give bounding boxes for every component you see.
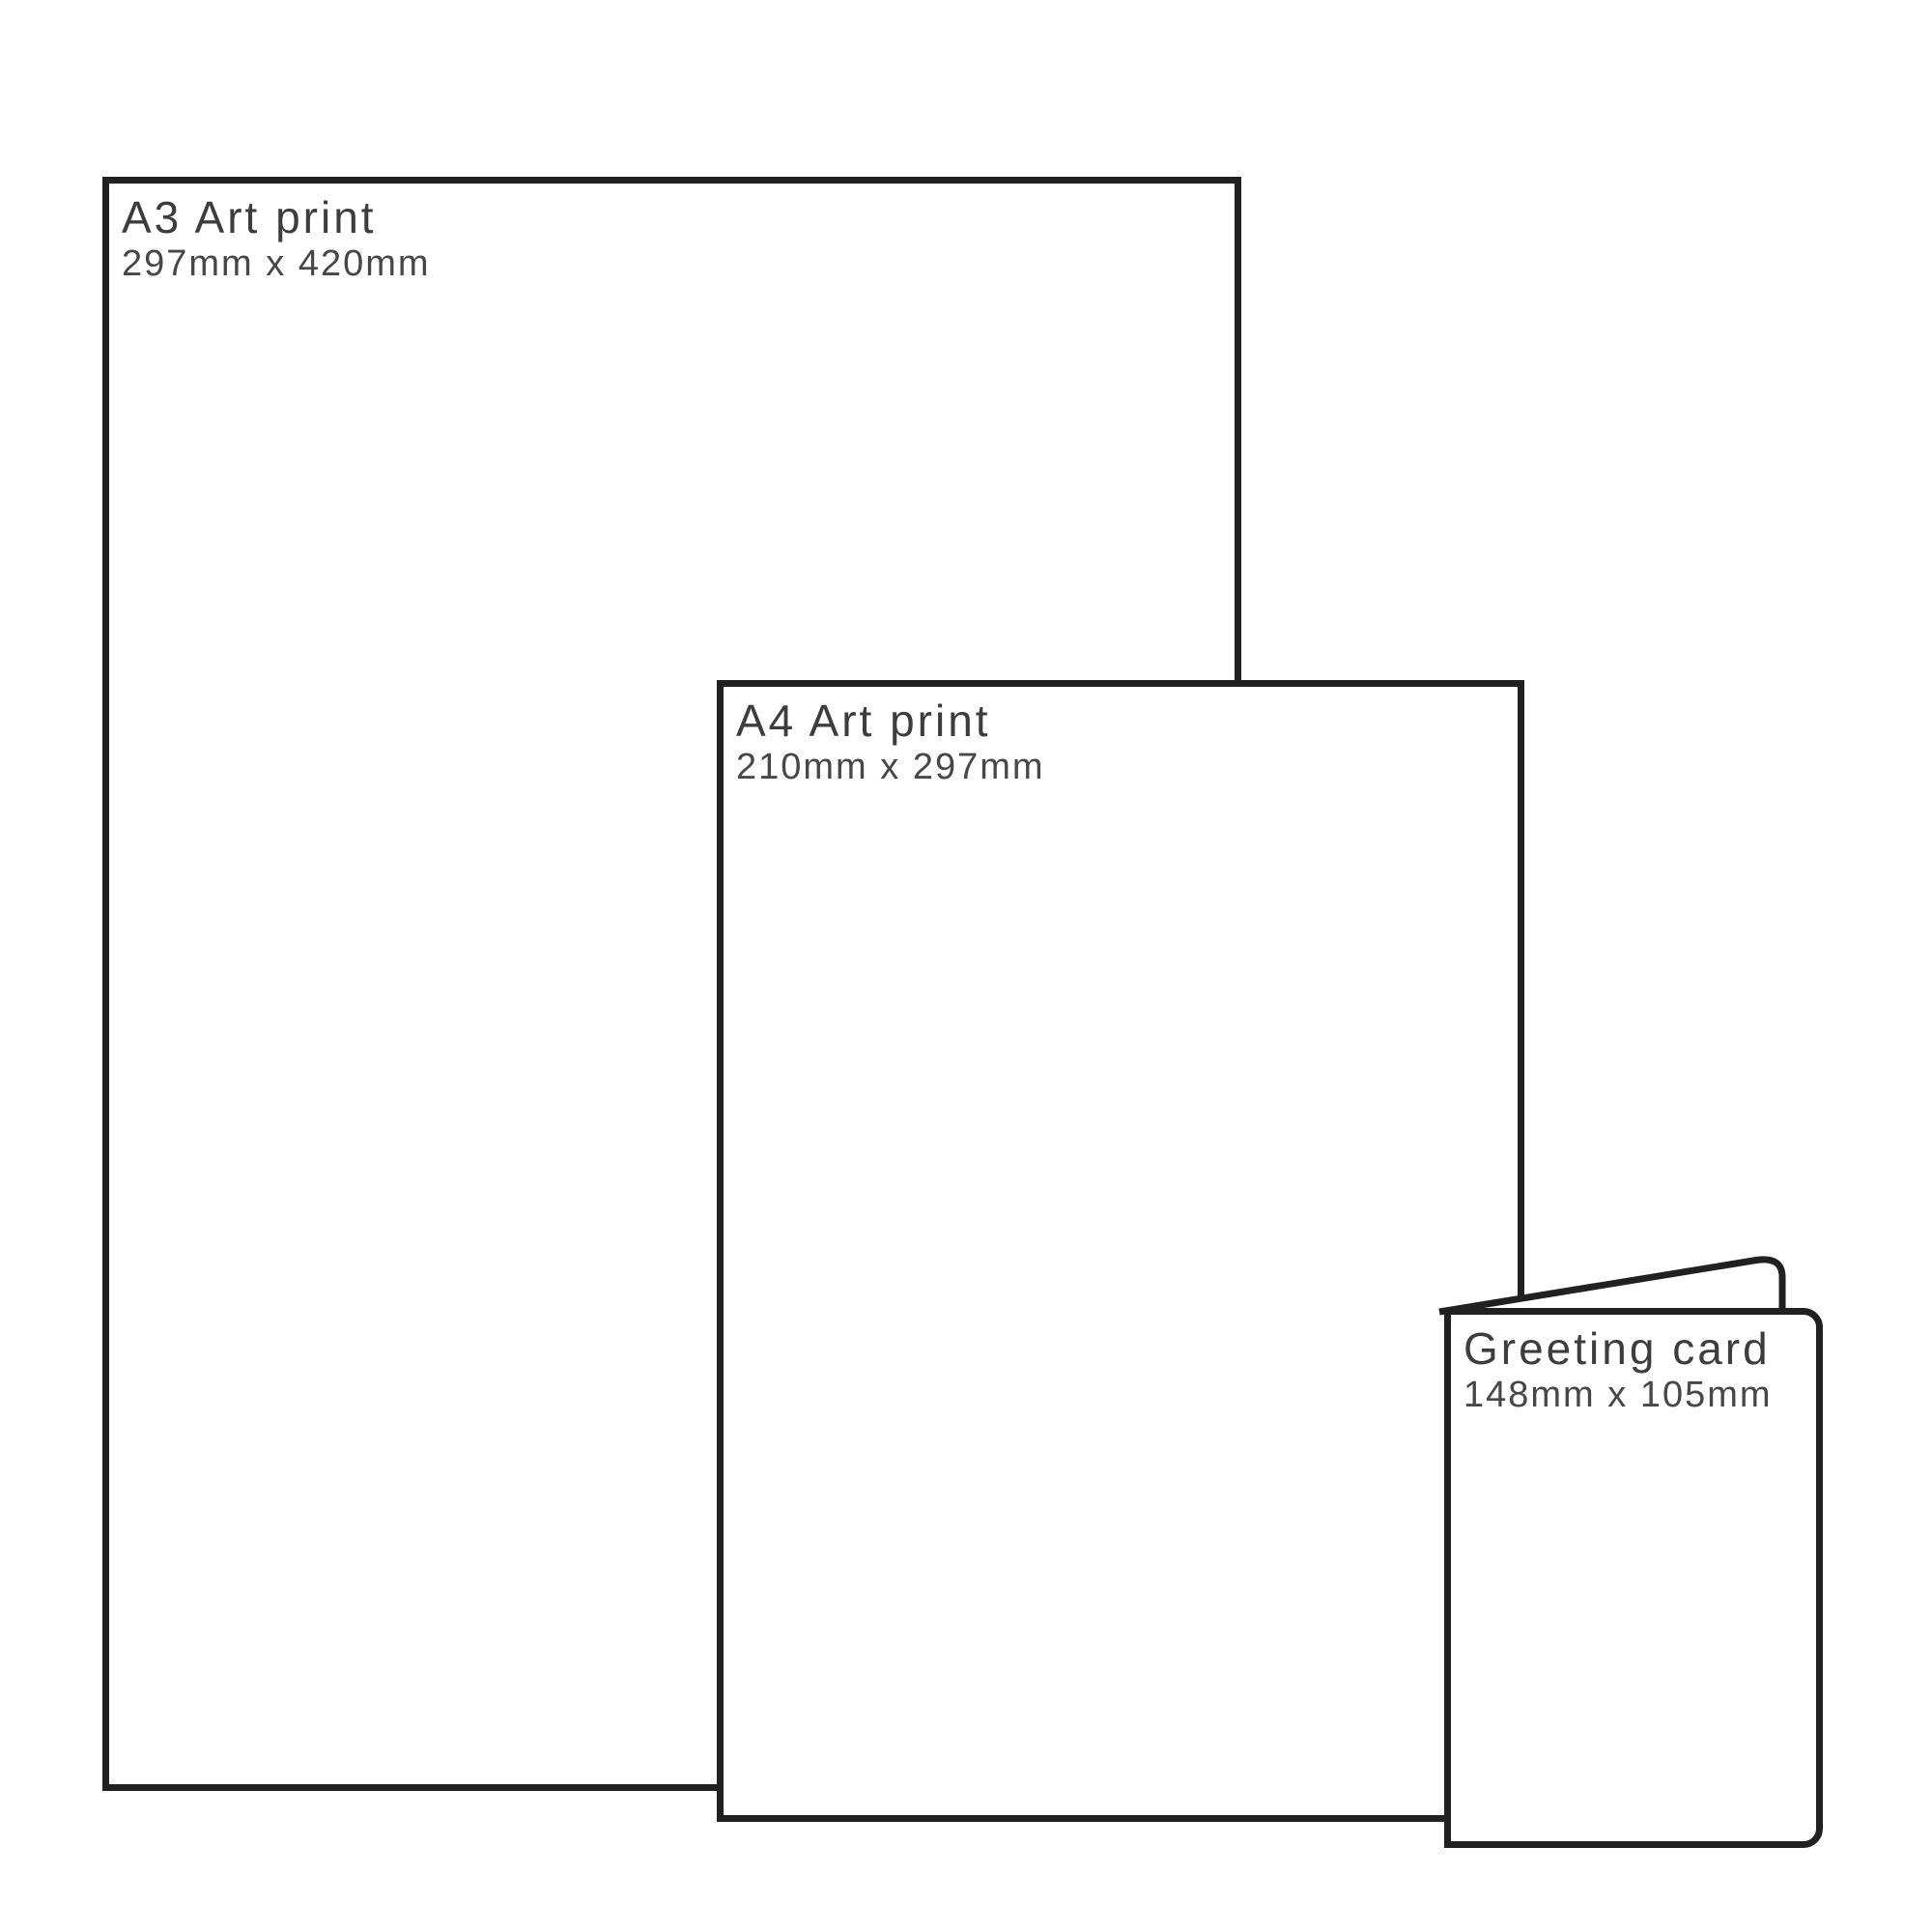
a3-print-dimensions: 297mm x 420mm (122, 243, 1235, 285)
a4-print-label: A4 Art print 210mm x 297mm (724, 687, 1518, 788)
a3-print-title: A3 Art print (122, 192, 1235, 243)
greeting-card-dimensions: 148mm x 105mm (1463, 1375, 1816, 1416)
a4-print-dimensions: 210mm x 297mm (736, 747, 1518, 788)
a4-print-box: A4 Art print 210mm x 297mm (717, 680, 1524, 1822)
greeting-card-box: Greeting card 148mm x 105mm (1444, 1308, 1823, 1848)
a4-print-title: A4 Art print (736, 696, 1518, 747)
greeting-card-title: Greeting card (1463, 1323, 1816, 1375)
greeting-card-label: Greeting card 148mm x 105mm (1451, 1315, 1816, 1416)
a3-print-label: A3 Art print 297mm x 420mm (109, 184, 1235, 285)
size-comparison-diagram: A3 Art print 297mm x 420mm A4 Art print … (0, 0, 1932, 1932)
